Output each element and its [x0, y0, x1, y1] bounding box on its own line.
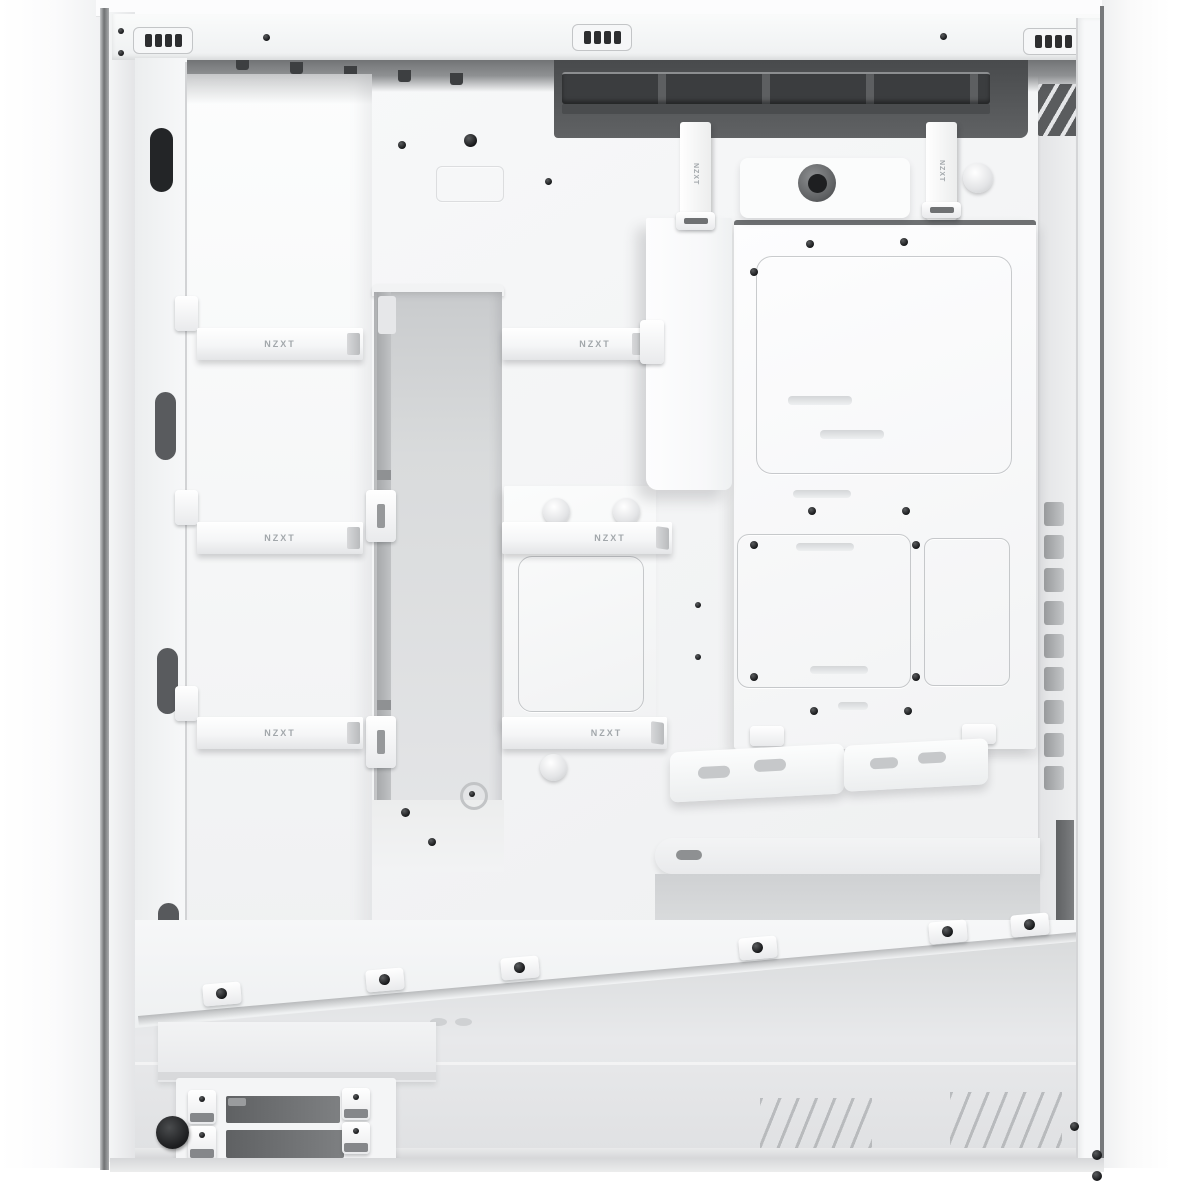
- strap-keeper: [922, 202, 961, 218]
- strap-brand-label: NZXT: [594, 533, 626, 543]
- cable-strap-left-2: NZXT: [197, 522, 363, 554]
- cage-clip: [342, 1122, 370, 1154]
- wall-foot-tab: [750, 726, 784, 746]
- top-hook-tab: [290, 62, 303, 74]
- thumbscrew-white: [963, 163, 993, 193]
- mount-screw-hole: [806, 240, 814, 248]
- drive-wall-slot: [796, 543, 854, 551]
- clip-grommet: [215, 988, 227, 1000]
- cage-clip-pin: [353, 1128, 359, 1134]
- strap-keeper: [640, 320, 664, 364]
- channel-hook: [366, 716, 396, 768]
- psu-shroud-shelf: [655, 838, 1040, 874]
- strap-brand-label: NZXT: [264, 533, 296, 543]
- drive-wall-emboss-upper: [756, 256, 1012, 474]
- top-vent-grille-center: [572, 24, 632, 51]
- strap-end-cap: [347, 527, 360, 549]
- cage-clip-pin: [353, 1094, 359, 1100]
- drive-wall-slot: [820, 430, 884, 439]
- channel-grommet-pin: [469, 791, 475, 797]
- front-frame-strip: [135, 58, 187, 1046]
- top-hook-tab: [398, 70, 411, 82]
- tray-edge-clip: [1010, 912, 1050, 937]
- channel-top-tab: [378, 296, 396, 334]
- mount-screw-hole: [808, 507, 816, 515]
- cable-bridge-2: [844, 738, 988, 792]
- panel-screw: [263, 34, 270, 41]
- case-right-edge: [1100, 6, 1104, 1172]
- case-left-flange: [109, 12, 135, 1162]
- top-hook-tab: [450, 73, 463, 85]
- strap-end-cap: [347, 333, 360, 355]
- bridge-slot: [698, 765, 730, 779]
- clip-grommet: [1023, 919, 1035, 931]
- strap-end-cap: [656, 526, 669, 550]
- channel-strip-notch: [377, 700, 391, 710]
- tray-edge-clip: [500, 955, 540, 980]
- channel-strip-notch: [377, 470, 391, 480]
- cage-clip-foot: [190, 1113, 214, 1122]
- cage-clip-pin: [199, 1132, 205, 1138]
- thumbscrew-white: [613, 498, 640, 525]
- tray-screw: [398, 141, 406, 149]
- cable-strap-mid-2: NZXT: [502, 522, 672, 554]
- cable-bridge-1: [670, 743, 844, 802]
- center-plate-emboss: [518, 556, 644, 712]
- cage-thumbscrew: [156, 1116, 189, 1149]
- ssd-emboss-right: [924, 538, 1010, 686]
- channel-screw: [428, 838, 436, 846]
- tray-edge-clip: [202, 981, 242, 1006]
- cage-clip-foot: [344, 1109, 368, 1118]
- strap-brand-label: NZXT: [579, 339, 611, 349]
- strap-keeper: [676, 212, 715, 230]
- rear-screw: [1092, 1171, 1102, 1181]
- strap-end-cap: [347, 722, 360, 744]
- mount-screw: [695, 602, 701, 608]
- strap-brand-label: NZXT: [938, 160, 945, 182]
- strap-brand-label: NZXT: [264, 728, 296, 738]
- embossed-mark: [436, 166, 504, 202]
- clip-grommet: [941, 926, 953, 938]
- top-vent-grille-left: [133, 27, 193, 54]
- case-right-flange: [1076, 18, 1102, 1164]
- top-vent-grille-right: [1023, 28, 1083, 55]
- mount-screw: [695, 654, 701, 660]
- cage-clip-pin: [199, 1096, 205, 1102]
- top-fan-slot-rail: [562, 72, 990, 104]
- tray-edge-clip: [738, 935, 778, 960]
- bridge-slot: [870, 757, 898, 769]
- channel-screw: [401, 808, 410, 817]
- channel-hook: [366, 490, 396, 542]
- mount-screw-hole: [750, 541, 758, 549]
- mount-screw-hole: [750, 673, 758, 681]
- front-oval-cutout-1: [150, 128, 173, 192]
- cage-clip: [188, 1126, 216, 1160]
- rivet: [118, 28, 124, 34]
- case-left-edge: [100, 8, 109, 1170]
- psu-rail-right: [950, 1092, 1062, 1150]
- cable-strap-mid-1: NZXT: [502, 328, 648, 360]
- rear-screw: [1092, 1150, 1102, 1160]
- front-oval-cutout-2: [155, 392, 176, 460]
- clip-grommet: [751, 942, 763, 954]
- cable-strap-left-1: NZXT: [197, 328, 363, 360]
- cage-clip-foot: [344, 1143, 368, 1152]
- rivet: [118, 50, 124, 56]
- pc-case-photo: NZXT NZXT NZXT NZXT NZXT NZXT NZXT NZXT: [0, 0, 1200, 1200]
- background-right: [1102, 0, 1200, 1200]
- rear-screw: [1070, 1122, 1079, 1131]
- mount-screw-hole: [750, 268, 758, 276]
- thumbscrew-white: [543, 498, 570, 525]
- channel-bottom-plate: [372, 800, 504, 872]
- tray-edge-clip: [365, 967, 405, 992]
- cage-clip: [342, 1088, 370, 1120]
- cage-clip: [188, 1090, 216, 1124]
- thumbscrew-dark-center: [808, 174, 827, 193]
- tie-down-slot-column: [1044, 502, 1064, 790]
- drive-wall-slot: [838, 702, 868, 710]
- cage-clip-foot: [190, 1149, 214, 1158]
- strap-mount-tab: [175, 296, 198, 331]
- strap-brand-label: NZXT: [591, 728, 623, 738]
- mount-screw-hole: [904, 707, 912, 715]
- cable-strap-mid-3: NZXT: [502, 717, 667, 749]
- mount-screw-hole: [902, 507, 910, 515]
- clip-grommet: [378, 974, 390, 986]
- drive-wall-slot: [793, 490, 851, 498]
- background-bottom: [0, 1168, 1200, 1200]
- mount-screw-hole: [900, 238, 908, 246]
- front-chamber-top-shade: [187, 74, 372, 104]
- cable-strap-left-3: NZXT: [197, 717, 363, 749]
- bridge-slot: [918, 751, 946, 763]
- background-left: [0, 0, 100, 1200]
- shelf-oval-slot: [455, 1018, 472, 1026]
- clip-grommet: [513, 962, 525, 974]
- tray-hole: [464, 134, 477, 147]
- vertical-strap-1: NZXT: [680, 122, 711, 226]
- strap-brand-label: NZXT: [692, 163, 699, 185]
- panel-screw: [940, 33, 947, 40]
- tray-edge-clip: [928, 919, 968, 944]
- rear-inner-wall: [1036, 56, 1076, 940]
- mount-screw-hole: [912, 673, 920, 681]
- drive-tray-slot-2: [226, 1130, 344, 1158]
- ssd-emboss-left: [737, 534, 911, 688]
- mount-screw-hole: [810, 707, 818, 715]
- thumbscrew-white: [540, 754, 567, 781]
- tray-screw: [545, 178, 552, 185]
- strap-brand-label: NZXT: [264, 339, 296, 349]
- case-bottom-band: [110, 1158, 1104, 1172]
- bridge-slot: [754, 758, 786, 772]
- mount-screw-hole: [912, 541, 920, 549]
- drive-wall-slot: [810, 666, 868, 674]
- strap-mount-tab: [175, 686, 198, 721]
- shroud-slot: [676, 850, 702, 860]
- top-fan-slot-rail-lower: [562, 104, 990, 114]
- strap-end-cap: [651, 721, 664, 745]
- drive-tray-chip: [228, 1098, 246, 1106]
- strap-mount-tab: [175, 490, 198, 525]
- drive-wall-slot: [788, 396, 852, 405]
